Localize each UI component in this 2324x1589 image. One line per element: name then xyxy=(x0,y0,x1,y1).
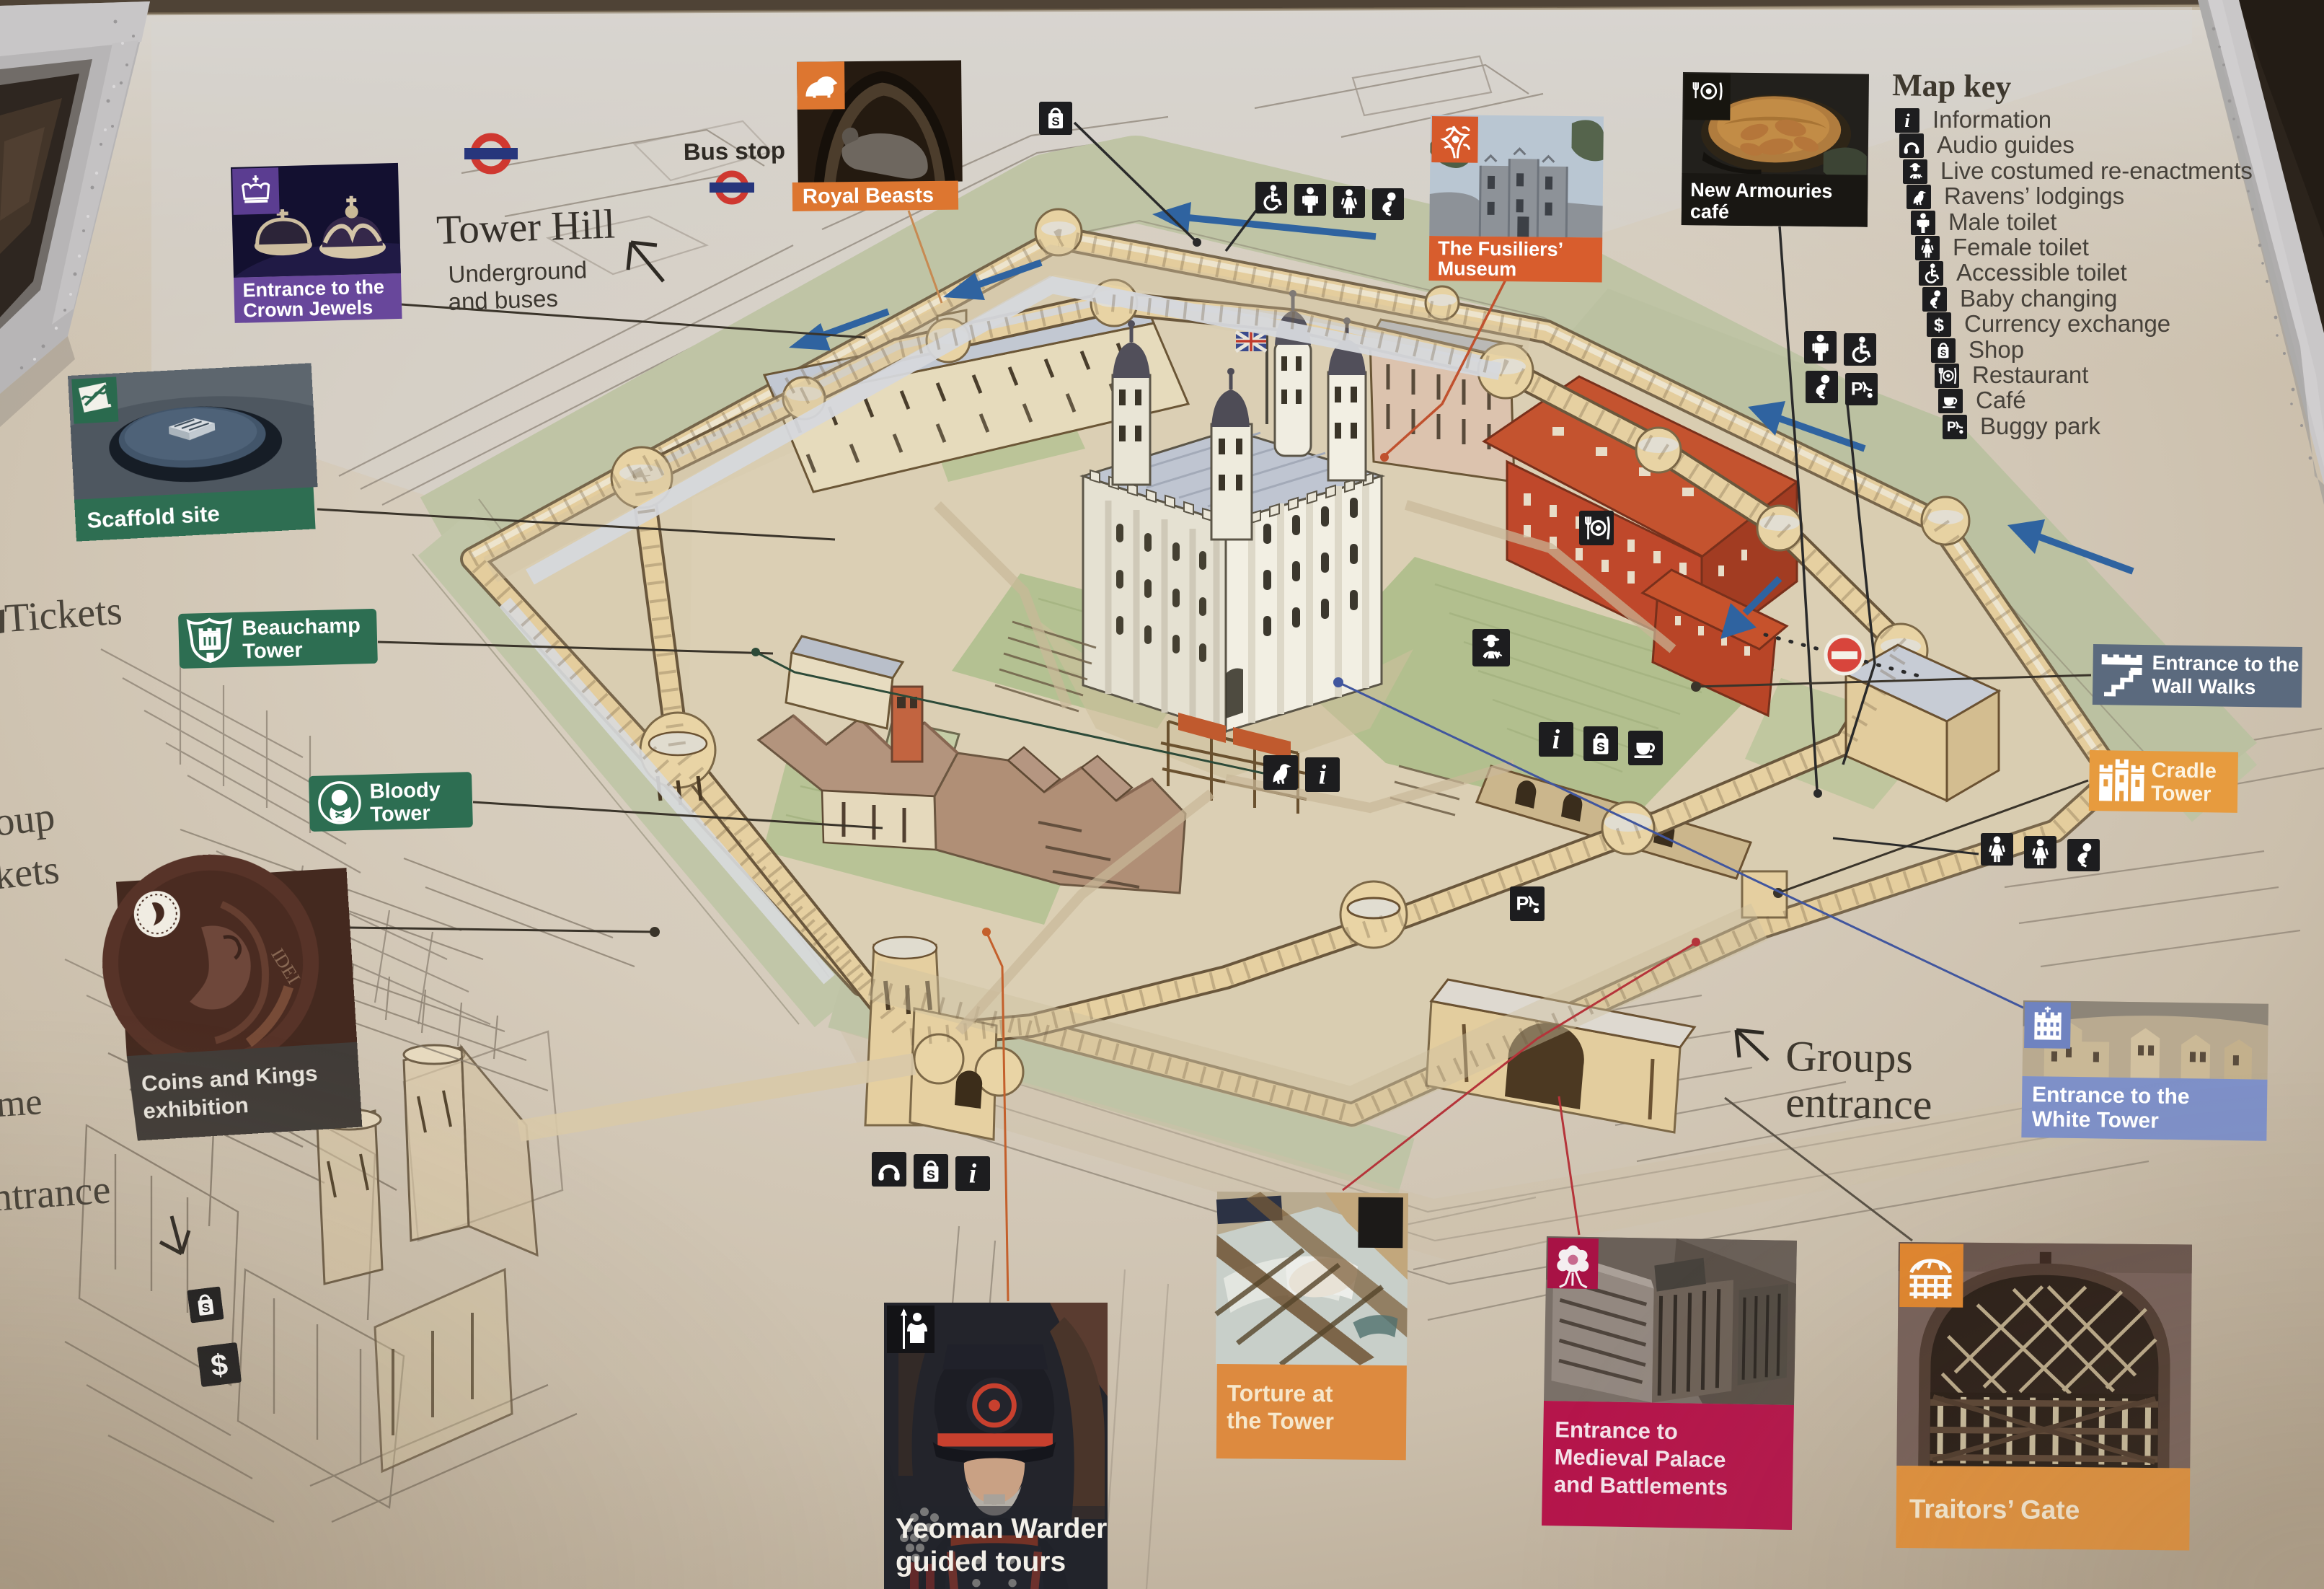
svg-text:Beauchamp: Beauchamp xyxy=(242,614,361,640)
svg-text:Crown Jewels: Crown Jewels xyxy=(243,296,374,322)
svg-text:and buses: and buses xyxy=(448,285,558,315)
svg-text:Museum: Museum xyxy=(1438,258,1517,280)
svg-text:Bloody: Bloody xyxy=(369,778,441,804)
svg-text:Currency exchange: Currency exchange xyxy=(1964,310,2170,337)
svg-text:Tower: Tower xyxy=(242,639,303,664)
svg-text:Tower: Tower xyxy=(370,802,430,827)
svg-text:me: me xyxy=(0,1081,43,1125)
svg-text:café: café xyxy=(1690,201,1729,223)
svg-text:Accessible toilet: Accessible toilet xyxy=(1956,259,2127,286)
svg-text:the Tower: the Tower xyxy=(1227,1407,1334,1434)
svg-text:ntrance: ntrance xyxy=(0,1167,112,1220)
svg-text:Baby changing: Baby changing xyxy=(1960,285,2117,312)
svg-text:kets: kets xyxy=(0,847,61,898)
svg-text:Tickets: Tickets xyxy=(4,589,124,641)
svg-text:Female toilet: Female toilet xyxy=(1953,234,2089,260)
svg-text:Underground: Underground xyxy=(448,256,588,288)
svg-text:Shop: Shop xyxy=(1969,336,2024,363)
svg-text:Cradle: Cradle xyxy=(2151,759,2217,783)
svg-text:Tower: Tower xyxy=(2151,782,2212,806)
svg-text:Restaurant: Restaurant xyxy=(1972,361,2088,388)
svg-text:Male toilet: Male toilet xyxy=(1948,208,2056,235)
svg-text:Ravens’ lodgings: Ravens’ lodgings xyxy=(1944,182,2124,209)
svg-text:New Armouries: New Armouries xyxy=(1690,179,1832,202)
svg-text:entrance: entrance xyxy=(1785,1078,1932,1129)
svg-text:The Fusiliers’: The Fusiliers’ xyxy=(1438,237,1563,260)
svg-text:Royal Beasts: Royal Beasts xyxy=(803,184,934,208)
svg-text:Torture at: Torture at xyxy=(1227,1380,1333,1407)
svg-text:Entrance to the: Entrance to the xyxy=(2152,651,2299,676)
svg-text:Café: Café xyxy=(1976,387,2026,413)
svg-text:Groups: Groups xyxy=(1785,1032,1914,1082)
svg-text:Audio guides: Audio guides xyxy=(1937,131,2075,158)
svg-text:Information: Information xyxy=(1932,106,2051,133)
svg-text:oup: oup xyxy=(0,794,57,845)
svg-text:Wall Walks: Wall Walks xyxy=(2152,674,2256,698)
svg-text:Buggy park: Buggy park xyxy=(1980,413,2100,439)
svg-text:Map key: Map key xyxy=(1892,67,2012,105)
svg-text:Bus stop: Bus stop xyxy=(683,137,785,165)
svg-text:Tower Hill: Tower Hill xyxy=(436,201,616,253)
svg-text:Live costumed re-enactments: Live costumed re-enactments xyxy=(1940,157,2253,184)
